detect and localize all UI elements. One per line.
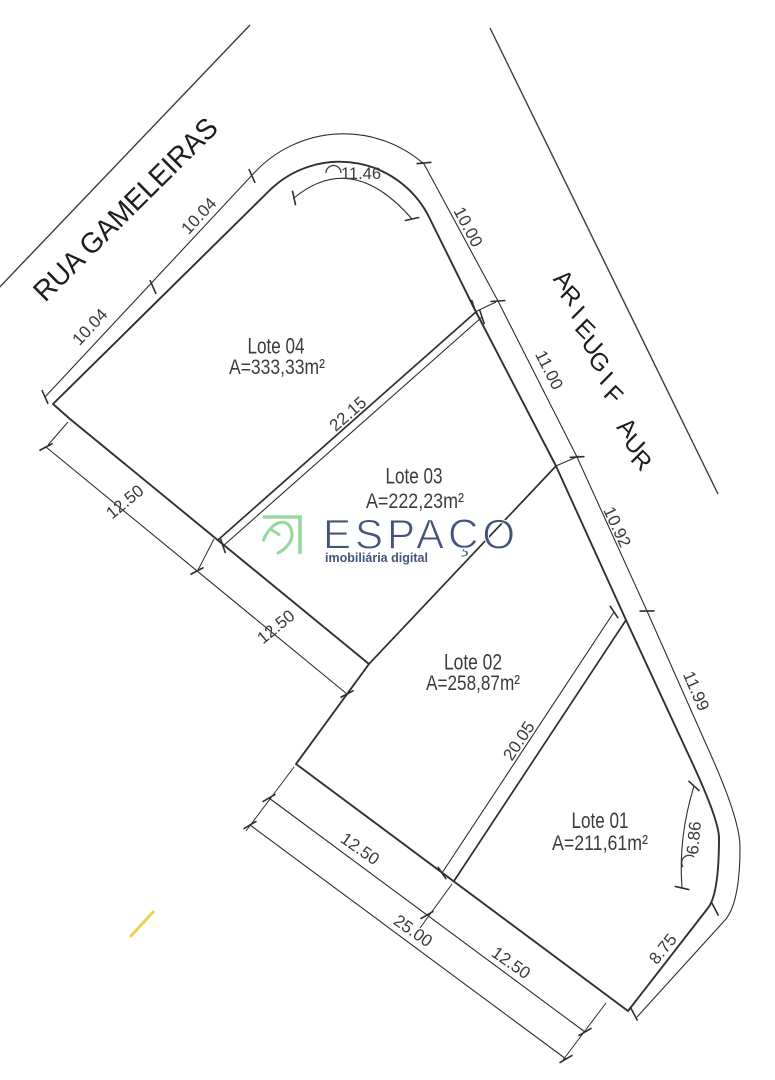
svg-text:Lote 04: Lote 04: [248, 334, 305, 359]
svg-text:A=333,33m²: A=333,33m²: [229, 356, 325, 379]
svg-text:6.86: 6.86: [683, 821, 705, 856]
svg-text:A=258,87m²: A=258,87m²: [426, 672, 520, 695]
svg-text:Lote 03: Lote 03: [386, 464, 443, 489]
svg-text:imobiliária digital: imobiliária digital: [325, 551, 428, 565]
svg-text:11.46: 11.46: [341, 165, 381, 183]
svg-text:A=211,61m²: A=211,61m²: [552, 832, 648, 855]
svg-text:Lote 02: Lote 02: [444, 650, 502, 675]
svg-text:Lote 01: Lote 01: [572, 808, 629, 833]
